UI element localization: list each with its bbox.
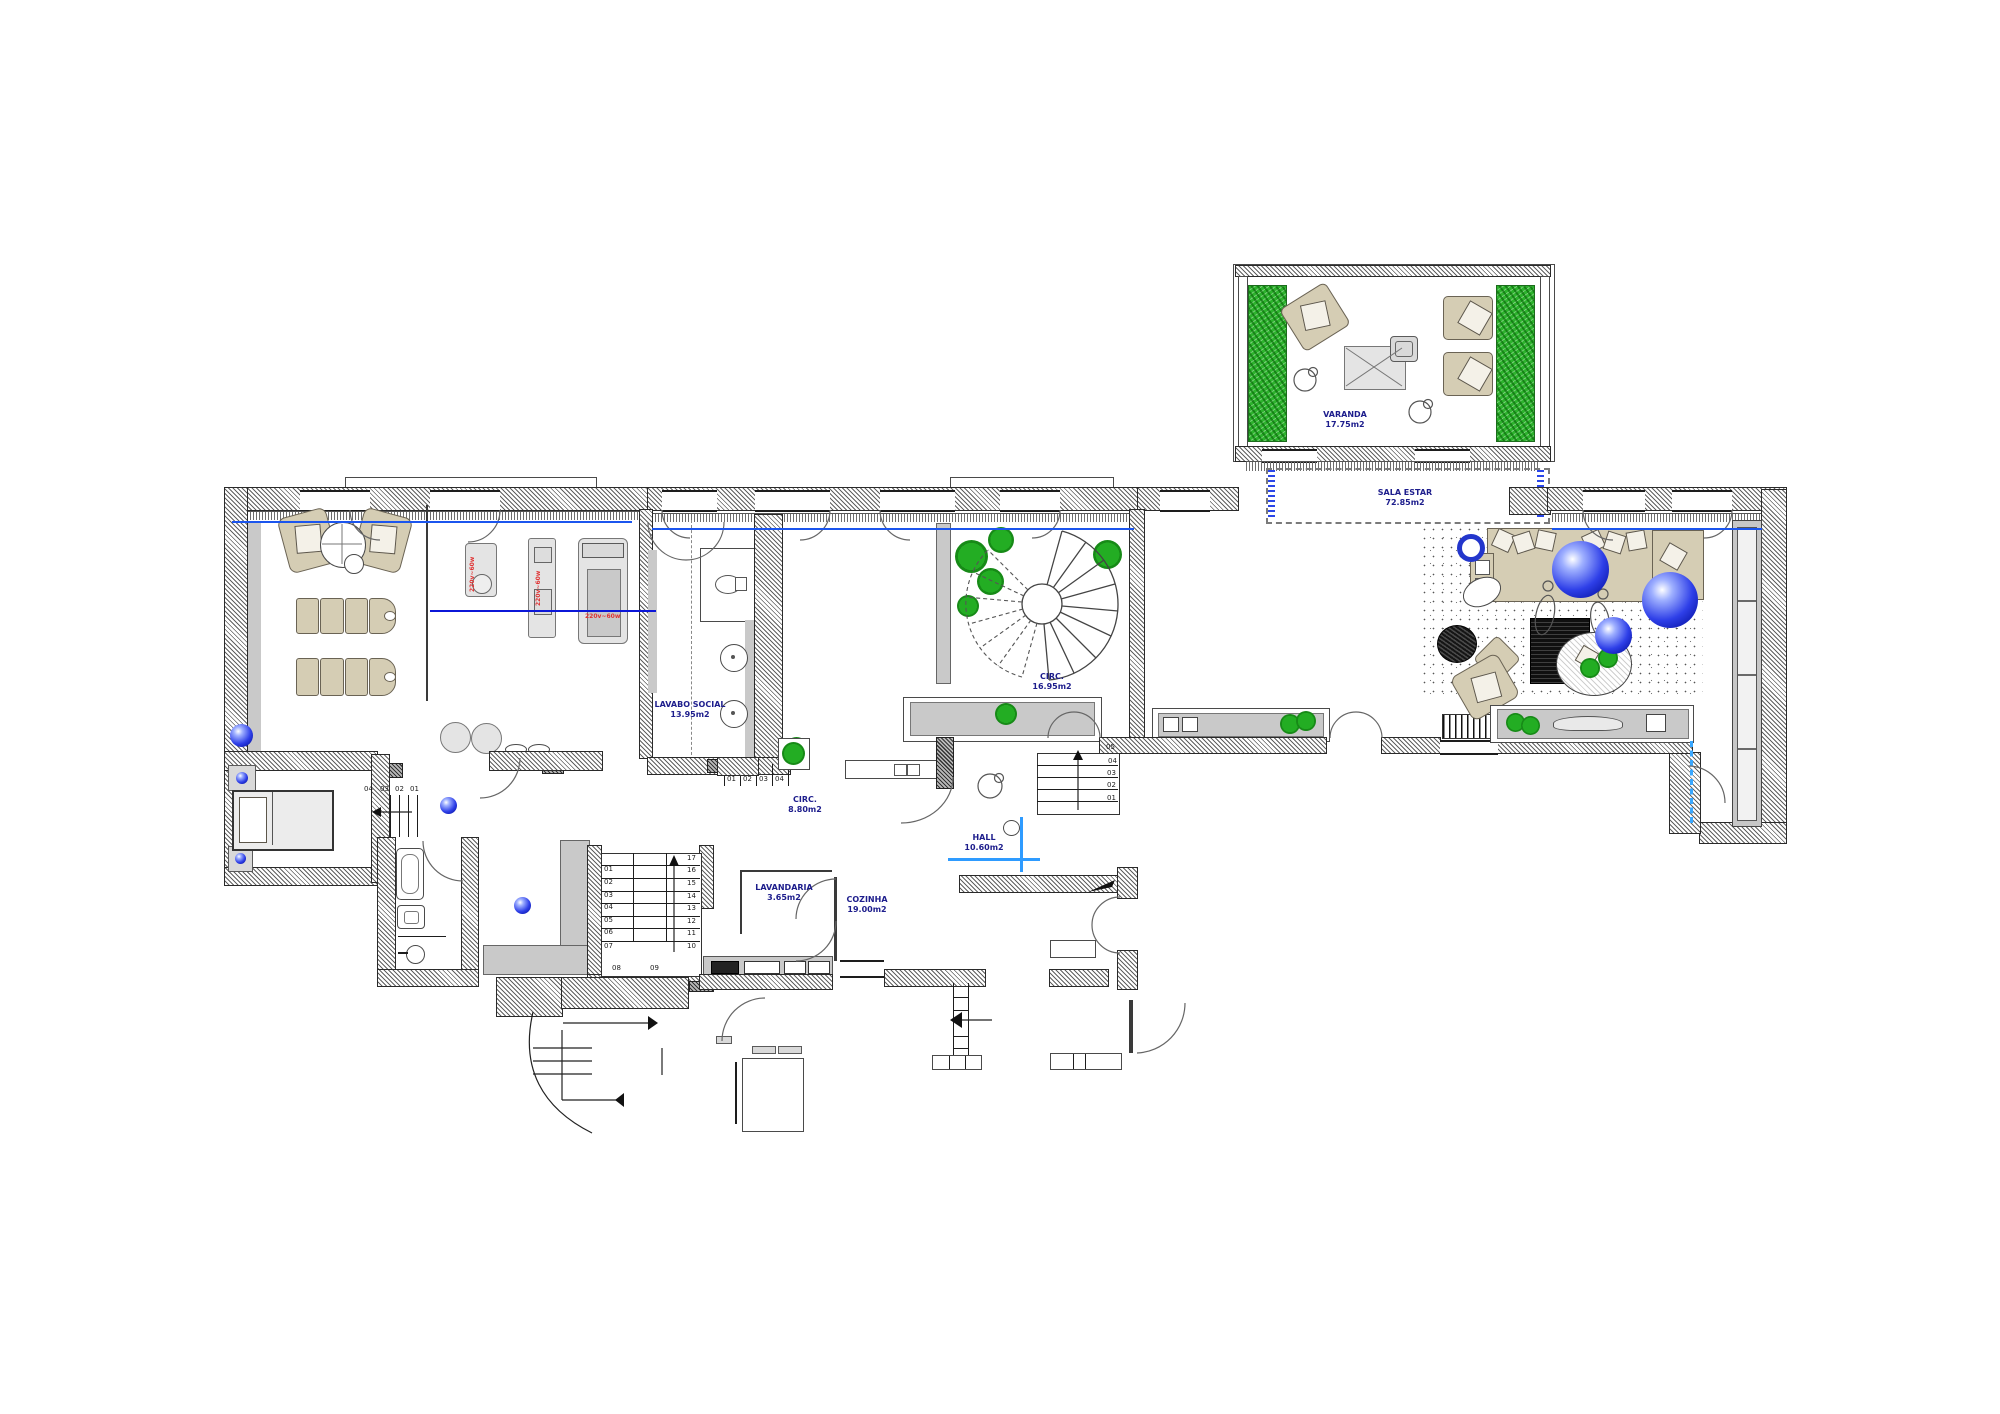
stair-num: 05 [604, 917, 613, 924]
table-headrest [369, 658, 396, 696]
label-sala-estar: SALA ESTAR 72.85m2 [1345, 488, 1465, 508]
varanda-top-wall [1236, 266, 1550, 276]
blue-sphere-small [236, 772, 248, 784]
sink [406, 945, 425, 964]
table-inner [1395, 341, 1413, 357]
entry-step-num: 02 [743, 776, 752, 783]
ext-stair-tread [953, 1048, 969, 1049]
entry-wall [1050, 970, 1108, 986]
stair-num: 03 [604, 892, 613, 899]
sofa-cushion [1534, 529, 1557, 552]
convector-circ [652, 513, 1134, 522]
ext-stair-tread [953, 1010, 969, 1011]
entry-platform [1050, 1053, 1122, 1070]
cabinet-sections [1737, 527, 1757, 821]
hall-tread [1037, 801, 1118, 802]
bathroom-bottom-wall [378, 970, 478, 986]
sala-blue-edge-left [1268, 470, 1275, 518]
room-name: CIRC. [1020, 672, 1084, 682]
platform-line [949, 1056, 950, 1069]
blue-wall-line-left [232, 521, 632, 523]
blue-sphere-small [235, 853, 246, 864]
lavabo-wc-enclosure [700, 548, 755, 622]
bench [716, 1036, 732, 1044]
stair-num: 09 [650, 965, 659, 972]
treadmill-belt [587, 569, 621, 637]
platform-line [1073, 1054, 1074, 1069]
gym-power-label-1: 220v~60w [470, 557, 476, 592]
hedge-right [1496, 285, 1535, 442]
exercise-ball [471, 723, 502, 754]
bed-step-num: 04 [364, 786, 373, 793]
stair-num: 10 [687, 943, 696, 950]
right-inner-corner-wall [1670, 753, 1700, 833]
table-box [1475, 560, 1490, 575]
circ-right-wall [1130, 510, 1144, 740]
plant [1093, 540, 1122, 569]
window [1160, 490, 1210, 512]
appliance [744, 961, 780, 974]
blue-sphere [230, 724, 253, 747]
varanda-lounge-chair-3 [1443, 352, 1493, 396]
lavabo-dash-line [691, 520, 692, 760]
appliance [808, 961, 830, 974]
hall-step-num: 03 [1107, 770, 1116, 777]
lavabo-counter [745, 620, 754, 760]
right-door-marker [1690, 741, 1693, 823]
room-area: 8.80m2 [775, 805, 835, 815]
bathtub [396, 848, 424, 900]
chair-pillow [1470, 671, 1502, 703]
right-wall-cabinet [1732, 520, 1762, 827]
console-box [1646, 714, 1666, 732]
entry-step [1050, 940, 1096, 958]
ext-table [742, 1058, 804, 1132]
room-area: 13.95m2 [648, 710, 732, 720]
stair-left-wall [588, 846, 601, 990]
table-segment [320, 658, 343, 696]
lavabo-right-wall [755, 515, 782, 760]
chair-pillow [369, 524, 397, 554]
ext-stair-rail [968, 983, 969, 1055]
label-cozinha: COZINHA 19.00m2 [832, 895, 902, 915]
spa-small-table [344, 554, 364, 574]
stair-num: 06 [604, 929, 613, 936]
toilet-tank [735, 577, 747, 591]
headrest-hole [384, 672, 396, 682]
circ-pillar [936, 523, 951, 684]
table-segment [320, 598, 343, 634]
stair-num: 14 [687, 893, 696, 900]
chair-pillow [1457, 356, 1493, 392]
varanda-right-wall [1540, 276, 1550, 454]
circ-small-top-wall [718, 758, 758, 775]
plant [995, 703, 1017, 725]
entry-step-num: 04 [775, 776, 784, 783]
room-area: 72.85m2 [1345, 498, 1465, 508]
ext-stair-tread [953, 1036, 969, 1037]
table-segment [345, 658, 368, 696]
bed-pillow [239, 797, 267, 843]
room-area: 10.60m2 [952, 843, 1016, 853]
varanda-left-wall [1238, 276, 1248, 454]
headrest-hole [384, 611, 396, 621]
stair-tread [601, 903, 700, 904]
stair-tread [601, 878, 700, 879]
ext-table-item [752, 1046, 776, 1054]
step-tick [399, 795, 400, 837]
tv [1553, 716, 1623, 731]
floor-plan: 220v~60w 220v~60w 220v~60w 01 02 03 04 [0, 0, 2000, 1414]
shelf-line [398, 936, 446, 937]
room-area: 19.00m2 [832, 905, 902, 915]
lower-top-wall [490, 752, 602, 770]
ext-wall-step-1 [497, 978, 562, 1016]
chair-pillow [1457, 300, 1493, 336]
toilet [397, 905, 425, 929]
stair-tread [601, 865, 700, 866]
laundry-bottom-wall [700, 975, 832, 989]
massage-table-row-2 [296, 658, 396, 694]
stair-num: 07 [604, 943, 613, 950]
label-circ-small: CIRC. 8.80m2 [775, 795, 835, 815]
chair-pillow [294, 524, 322, 554]
blue-sphere-large [1642, 572, 1698, 628]
window [880, 490, 955, 512]
hall-blue-line [948, 858, 1040, 861]
treadmill-console [582, 543, 624, 558]
stair-num: 17 [687, 855, 696, 862]
sideboard-box [1163, 717, 1179, 732]
label-lavabo-social: LAVABO SOCIAL 13.95m2 [648, 700, 732, 720]
chair-pillow [1300, 300, 1331, 331]
left-wall-closet-strip [248, 522, 261, 752]
window [300, 490, 370, 512]
stair-num: 16 [687, 867, 696, 874]
lavabo-door-panel [648, 550, 657, 693]
blue-wall-line-right [1552, 528, 1762, 530]
step-tick [417, 795, 418, 837]
spa-gym-divider [426, 505, 428, 701]
stair-tread [601, 916, 700, 917]
room-area: 3.65m2 [745, 893, 823, 903]
plant [1296, 711, 1316, 731]
stair-tread [601, 891, 700, 892]
sofa-cushion [1625, 529, 1647, 551]
bed-step-num: 02 [395, 786, 404, 793]
sink-drain [731, 655, 735, 659]
stair-tread [601, 928, 700, 929]
hall-right-wall-1 [1118, 868, 1137, 898]
stair-tread [601, 941, 700, 942]
room-name: VARANDA [1295, 410, 1395, 420]
entry-door-leaf [1129, 1000, 1133, 1053]
hall-step-num: 05 [1106, 744, 1115, 751]
kitchen-tall-cabinet [937, 738, 953, 788]
table-segment [296, 658, 319, 696]
room-name: LAVABO SOCIAL [648, 700, 732, 710]
plant [988, 527, 1014, 553]
massage-table-row-1 [296, 598, 396, 632]
stair-num: 11 [687, 930, 696, 937]
exercise-ball [440, 722, 471, 753]
gym-power-label-2: 220v~60w [536, 571, 542, 606]
gym-power-label-3: 220v~60w [585, 614, 620, 620]
corridor-counter-vert [560, 840, 590, 950]
ext-table-side [735, 1062, 737, 1124]
stair-num: 15 [687, 880, 696, 887]
ext-stair-tread [953, 997, 969, 998]
ceiling-fan-symbol [1457, 534, 1485, 562]
lavandaria-left-wall [740, 870, 742, 934]
hall-tread [1037, 765, 1118, 766]
plant [1521, 716, 1540, 735]
hall-tread [1037, 777, 1118, 778]
hall-step-num: 04 [1108, 758, 1117, 765]
window [430, 490, 500, 512]
plant [955, 540, 988, 573]
room-area: 16.95m2 [1020, 682, 1084, 692]
hall-bottom-wall [960, 876, 1118, 892]
room-name: CIRC. [775, 795, 835, 805]
ext-stair-platform [932, 1055, 982, 1070]
ext-stair-rail [953, 983, 954, 1055]
bed-step-num: 03 [380, 786, 389, 793]
platform-line [1085, 1054, 1086, 1069]
window [1583, 490, 1645, 512]
stair-num: 08 [612, 965, 621, 972]
step-tick [772, 764, 773, 786]
window [1672, 490, 1732, 512]
gym-machine-multigym [528, 538, 556, 638]
kitchen-sink-bowl [907, 764, 920, 776]
stair-num: 02 [604, 879, 613, 886]
right-outer-wall [1762, 490, 1786, 840]
plant [977, 568, 1004, 595]
sideboard-box [1182, 717, 1198, 732]
table-headrest [369, 598, 396, 634]
hall-tread [1037, 789, 1118, 790]
room-name: HALL [952, 833, 1016, 843]
blue-sphere [440, 797, 457, 814]
appliance-dark [711, 961, 739, 974]
bed-step-num: 01 [410, 786, 419, 793]
kitchen-sink-bowl [894, 764, 907, 776]
stair-num: 04 [604, 904, 613, 911]
toilet-seat [404, 911, 419, 924]
hall-right-wall-2 [1118, 951, 1137, 989]
blue-sphere [514, 897, 531, 914]
window [755, 490, 830, 512]
label-circ-main: CIRC. 16.95m2 [1020, 672, 1084, 692]
nightstand [228, 765, 256, 791]
label-lavandaria: LAVANDARIA 3.65m2 [745, 883, 823, 903]
plant-box [778, 738, 810, 770]
plant [957, 595, 979, 617]
window [662, 490, 717, 512]
bathroom-left-wall [378, 838, 395, 986]
appliance [784, 961, 806, 974]
gym-section-line [430, 610, 656, 612]
tub-inner [401, 854, 419, 894]
plant [1580, 658, 1600, 678]
faucet [398, 952, 408, 954]
blue-sphere-large [1552, 541, 1609, 598]
room-name: COZINHA [832, 895, 902, 905]
room-name: LAVANDARIA [745, 883, 823, 893]
blue-wall-line-circ [652, 528, 1134, 530]
hall-step-num: 01 [1107, 795, 1116, 802]
window [1000, 490, 1060, 512]
varanda-side-table [1390, 336, 1418, 362]
entry-step-num: 03 [759, 776, 768, 783]
ext-table-item [778, 1046, 802, 1054]
hall-step-num: 02 [1107, 782, 1116, 789]
stair-num: 13 [687, 905, 696, 912]
kitchen-back-door [840, 960, 884, 978]
hall-blue-line-v [1020, 817, 1023, 872]
machine-pad [534, 547, 552, 563]
ext-wall-step-2 [562, 978, 688, 1008]
label-varanda: VARANDA 17.75m2 [1295, 410, 1395, 430]
gym-treadmill [578, 538, 628, 644]
top-wall-veranda-right [1510, 488, 1550, 514]
bed-line [272, 792, 273, 845]
platform-line [965, 1056, 966, 1069]
label-hall: HALL 10.60m2 [952, 833, 1016, 853]
bed [232, 790, 334, 851]
room-name: SALA ESTAR [1345, 488, 1465, 498]
laundry-counter [703, 956, 833, 977]
entry-step-num: 01 [727, 776, 736, 783]
lavandaria-right-wall [834, 877, 837, 961]
table-segment [345, 598, 368, 634]
stair-num: 12 [687, 918, 696, 925]
corridor-bottom-wall-2 [1382, 738, 1440, 753]
step-tick [390, 795, 391, 837]
step-tick [408, 795, 409, 837]
black-round-table [1437, 625, 1477, 663]
plant [782, 742, 805, 765]
table-segment [296, 598, 319, 634]
kitchen-counter [845, 760, 942, 779]
bathroom-right-wall [462, 838, 478, 986]
lavandaria-top-wall [740, 870, 832, 872]
corridor-bottom-wall-1 [1100, 738, 1326, 753]
stair-num: 01 [604, 866, 613, 873]
corridor-counter-horz [483, 945, 590, 975]
varanda-lounge-chair-2 [1443, 296, 1493, 340]
kitchen-bottom-wall [885, 970, 985, 986]
arrow-heads [372, 750, 1115, 1107]
room-area: 17.75m2 [1295, 420, 1395, 430]
blue-sphere-medium [1595, 617, 1632, 654]
